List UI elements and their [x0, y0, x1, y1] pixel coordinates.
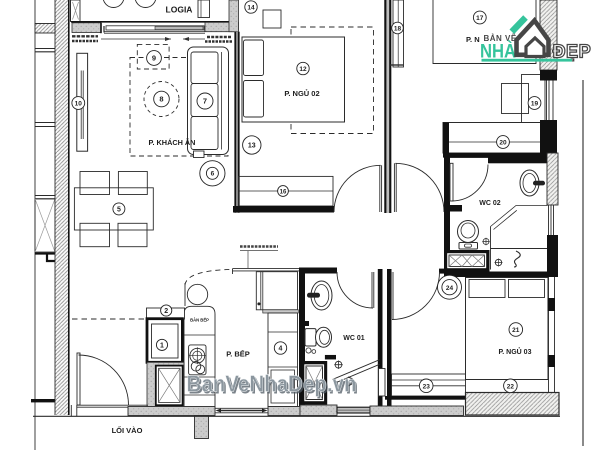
svg-text:BanVeNhaDep.vn: BanVeNhaDep.vn	[187, 371, 357, 397]
svg-text:WC 02: WC 02	[479, 200, 501, 207]
svg-text:20: 20	[499, 140, 507, 147]
svg-text:17: 17	[476, 15, 484, 22]
svg-text:2: 2	[164, 308, 168, 315]
svg-text:P. KHÁCH ĂN: P. KHÁCH ĂN	[149, 138, 196, 147]
svg-text:P. NGỦ 03: P. NGỦ 03	[499, 347, 532, 356]
svg-text:5: 5	[117, 206, 121, 213]
svg-text:13: 13	[248, 143, 256, 150]
svg-text:P. BẾP: P. BẾP	[226, 349, 250, 359]
svg-text:WC 01: WC 01	[343, 335, 365, 342]
svg-text:24: 24	[446, 285, 454, 292]
svg-text:6: 6	[211, 171, 215, 178]
svg-text:P. N: P. N	[466, 35, 480, 44]
svg-text:19: 19	[531, 101, 539, 108]
svg-text:8: 8	[159, 95, 163, 104]
svg-text:4: 4	[279, 346, 283, 353]
svg-text:21: 21	[512, 327, 520, 334]
svg-text:16: 16	[280, 189, 287, 195]
svg-text:9: 9	[152, 54, 156, 63]
svg-text:1: 1	[160, 342, 164, 349]
svg-text:12: 12	[299, 66, 307, 73]
svg-text:LOGIA: LOGIA	[166, 5, 193, 15]
svg-text:18: 18	[394, 26, 402, 33]
svg-text:10: 10	[75, 101, 83, 108]
svg-text:23: 23	[423, 383, 431, 390]
svg-text:14: 14	[247, 5, 255, 12]
svg-text:P. NGỦ 02: P. NGỦ 02	[284, 89, 319, 98]
svg-text:LỐI VÀO: LỐI VÀO	[112, 425, 143, 435]
svg-text:7: 7	[203, 97, 207, 106]
svg-text:ĐẸP: ĐẸP	[553, 41, 592, 61]
svg-text:22: 22	[507, 383, 515, 390]
svg-text:BÀN BẾP: BÀN BẾP	[190, 318, 209, 323]
